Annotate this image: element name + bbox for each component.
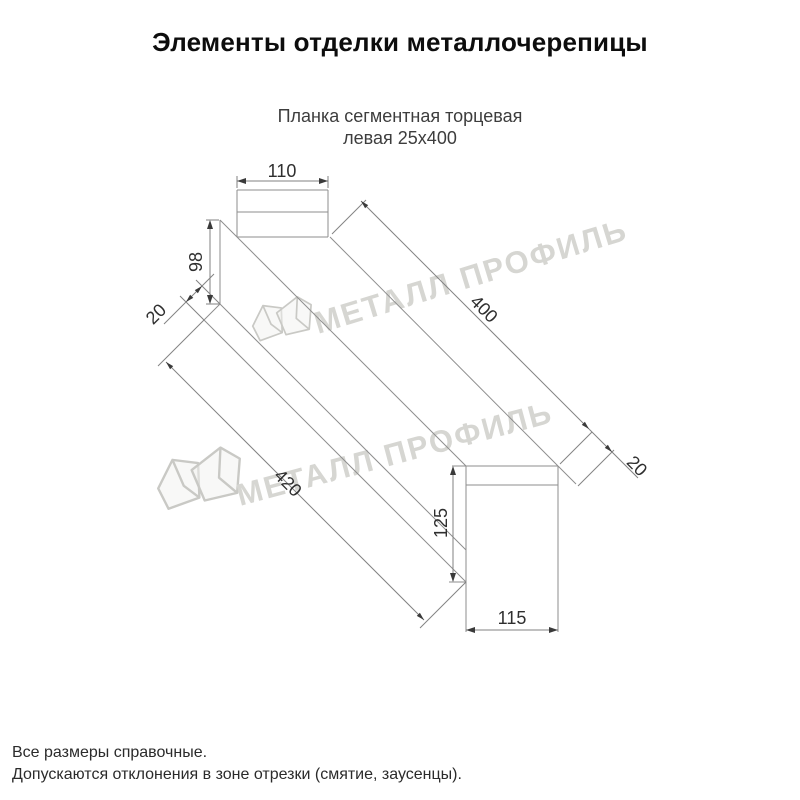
footnotes: Все размеры справочные. Допускаются откл… — [12, 742, 462, 786]
footnote-line2: Допускаются отклонения в зоне отрезки (с… — [12, 764, 462, 786]
dim-near-end-width: 115 — [498, 608, 527, 628]
dim-top-edge-length: 400 — [466, 291, 501, 326]
dim-far-end-height: 98 — [186, 252, 206, 272]
brand-logo-icon — [153, 445, 246, 510]
watermark-brand-text: МЕТАЛЛ ПРОФИЛЬ — [233, 395, 557, 513]
page: Элементы отделки металлочерепицы Планка … — [0, 0, 800, 800]
watermark-brand-text: МЕТАЛЛ ПРОФИЛЬ — [310, 212, 632, 341]
watermark-upper: МЕТАЛЛ ПРОФИЛЬ — [249, 212, 632, 342]
dim-far-hem: 20 — [142, 300, 170, 328]
dim-near-hem: 20 — [623, 452, 651, 480]
watermark-lower: МЕТАЛЛ ПРОФИЛЬ — [153, 395, 556, 513]
footnote-line1: Все размеры справочные. — [12, 742, 462, 764]
dim-near-end-height: 125 — [431, 508, 451, 538]
technical-drawing: МЕТАЛЛ ПРОФИЛЬ МЕТАЛЛ ПРОФИЛЬ — [0, 0, 800, 800]
brand-logo-icon — [249, 295, 316, 342]
dim-flange-width-top: 110 — [268, 161, 297, 181]
